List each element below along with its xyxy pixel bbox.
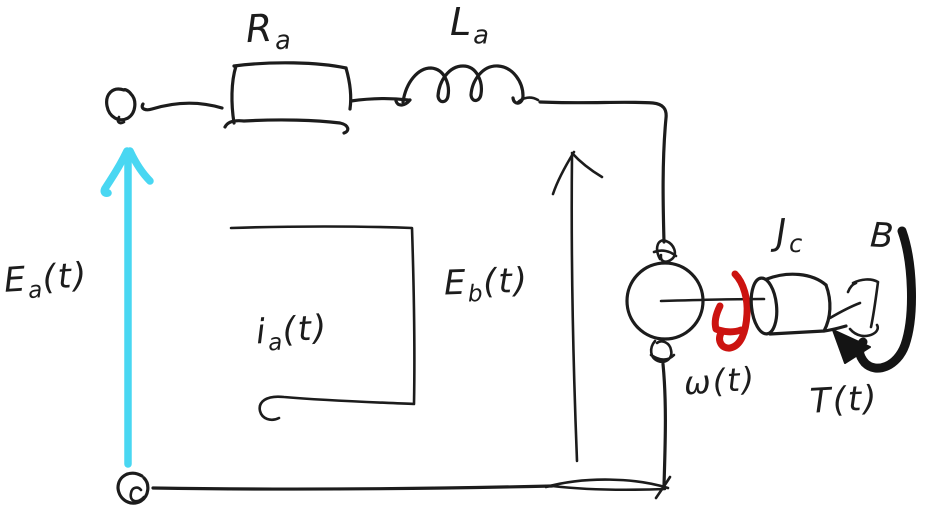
input-voltage-arrow xyxy=(104,151,150,464)
damper-bracket xyxy=(848,279,878,327)
damper-link-line xyxy=(830,303,860,318)
bottom-rail-main xyxy=(153,486,552,489)
emf-arrow-right-barb xyxy=(572,153,602,177)
cylinder-right-edge xyxy=(824,285,830,331)
bottom-rail-overlap-under xyxy=(552,486,665,490)
resistor-right-edge xyxy=(346,68,351,109)
input-terminal-bottom xyxy=(118,473,148,503)
wire-bottom xyxy=(153,477,670,498)
resistor-label: Ra xyxy=(245,5,293,58)
damper-smile xyxy=(850,325,878,336)
inductor-symbol xyxy=(396,66,538,105)
motor-terminal-bottom xyxy=(651,341,674,362)
wire-resistor-inductor xyxy=(351,99,408,101)
angular-velocity-label: ω(t) xyxy=(683,360,758,408)
input-terminal-top xyxy=(107,89,135,123)
damping-label: B xyxy=(869,215,897,261)
wire-top-right xyxy=(540,102,666,242)
motor-terminal-top xyxy=(654,240,676,261)
wire-top-left xyxy=(142,103,222,110)
inductor-coils xyxy=(403,66,523,103)
inertia-label: Jc xyxy=(775,212,804,259)
rotation-arrow-head xyxy=(715,306,741,332)
back-emf-arrow xyxy=(553,152,602,461)
inertia-cylinder xyxy=(749,274,846,335)
resistor-bottom-edge xyxy=(225,120,348,133)
resistor-top-edge xyxy=(234,63,346,68)
terminal-curl xyxy=(131,488,144,502)
resistor-left-edge xyxy=(232,66,236,123)
resistor-symbol xyxy=(225,63,351,133)
terminal-circle xyxy=(107,89,135,120)
inductor-label: La xyxy=(450,0,490,51)
emf-arrow-shaft xyxy=(572,155,577,461)
cylinder-left-face xyxy=(749,277,780,335)
cylinder-top-edge xyxy=(767,274,826,285)
rotation-arrow-hook xyxy=(720,274,748,348)
input-voltage-label: Ea(t) xyxy=(3,255,90,306)
wire-right-down xyxy=(663,364,665,486)
voltage-arrow-right-barb xyxy=(130,151,150,181)
back-emf-label: Eb(t) xyxy=(443,261,530,309)
whiteboard-canvas: Ra La Ea(t) Eb(t) ia(t) ω(t) T(t) Jc B xyxy=(0,0,932,527)
torque-label: T(t) xyxy=(809,378,880,426)
rotation-arrow xyxy=(715,274,747,348)
voltage-arrow-left-barb xyxy=(104,151,127,193)
armature-current-label: ia(t) xyxy=(255,308,330,358)
